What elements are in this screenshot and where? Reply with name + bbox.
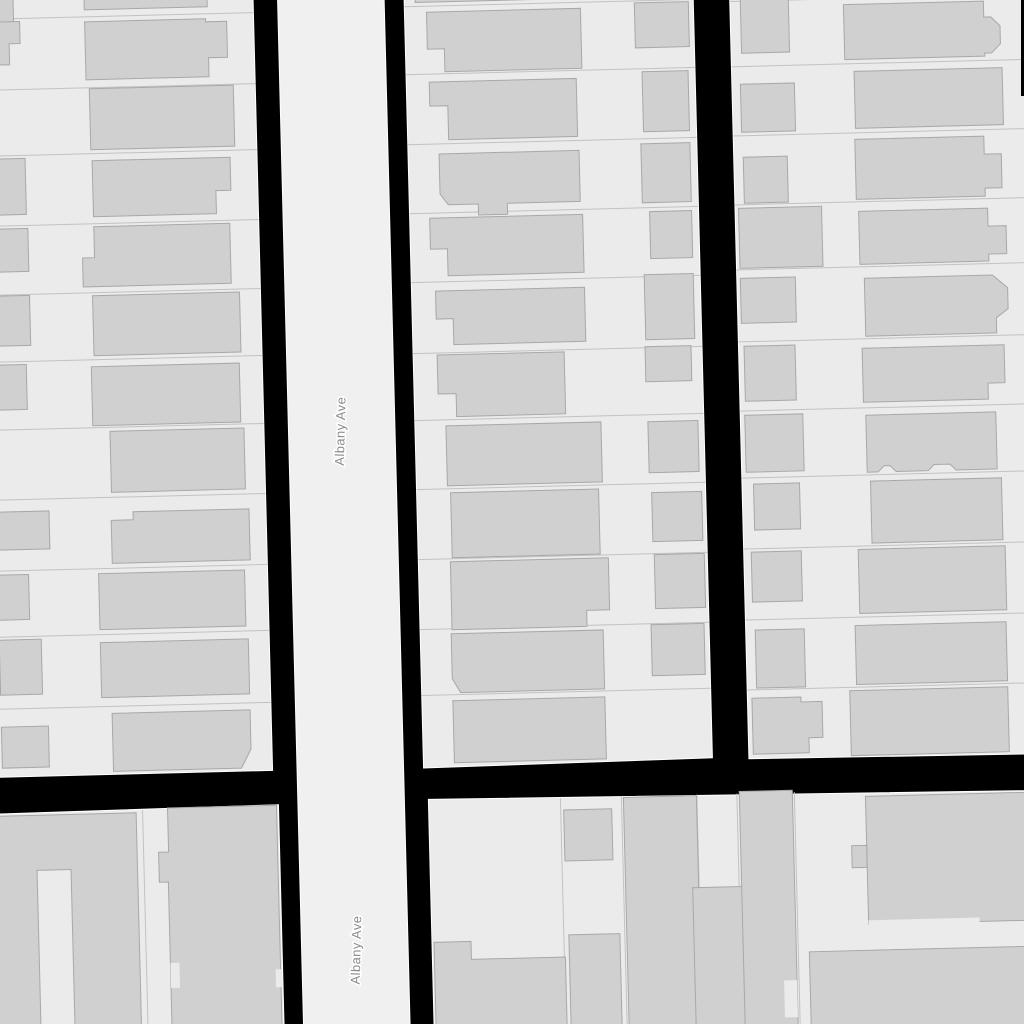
svg-text:Albany Ave: Albany Ave [332, 397, 349, 466]
svg-text:Albany Ave: Albany Ave [348, 915, 365, 984]
